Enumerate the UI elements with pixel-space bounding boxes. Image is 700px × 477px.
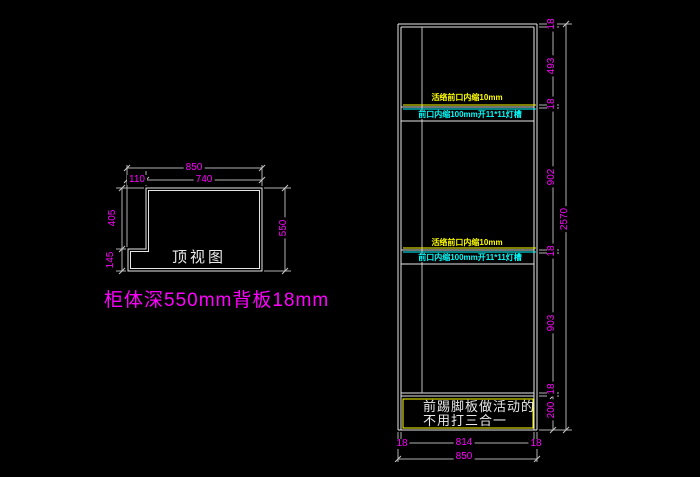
dim-h-section3: 903 (547, 313, 557, 334)
dim-top-width: 740 (194, 175, 215, 185)
dim-h-toe-kick: 200 (547, 400, 557, 421)
dim-left-upper: 405 (108, 208, 118, 229)
dim-overall-height: 2570 (560, 206, 570, 232)
top-view-title: 顶视图 (172, 250, 226, 265)
dim-depth: 550 (279, 218, 289, 239)
shelf1-yellow-note: 活络前口内缩10mm (431, 94, 502, 102)
elevation-outline (398, 24, 537, 430)
toe-kick-note-line1: 前踢脚板做活动的 (423, 400, 535, 413)
dim-w-right-panel: 18 (528, 439, 543, 449)
dim-h-shelf1: 18 (547, 96, 557, 111)
dim-notch-width: 110 (127, 175, 147, 185)
dim-h-section1: 493 (547, 56, 557, 77)
dim-h-shelf2: 18 (547, 243, 557, 258)
dim-h-bottom-panel: 18 (547, 381, 557, 396)
dim-w-inner: 814 (454, 438, 475, 448)
dim-left-lower: 145 (106, 250, 116, 271)
dim-w-left-panel: 18 (394, 439, 409, 449)
shelf1-cyan-note: 前口内缩100mm开11*11灯槽 (416, 111, 524, 119)
dim-overall-width-elevation: 850 (454, 452, 475, 462)
toe-kick-note-line2: 不用打三合一 (423, 414, 507, 427)
drawing-lines (0, 0, 700, 477)
shelf2-cyan-note: 前口内缩100mm开11*11灯槽 (416, 254, 524, 262)
shelf2-yellow-note: 活络前口内缩10mm (431, 239, 502, 247)
drawing-caption: 柜体深550mm背板18mm (104, 291, 329, 310)
dim-h-section2: 902 (547, 167, 557, 188)
cad-drawing-canvas[interactable]: 850 110 740 405 145 550 顶视图 柜体深550mm背板18… (0, 0, 700, 477)
dim-overall-width-top-view: 850 (184, 163, 205, 173)
dim-h-top-panel: 18 (547, 16, 557, 31)
